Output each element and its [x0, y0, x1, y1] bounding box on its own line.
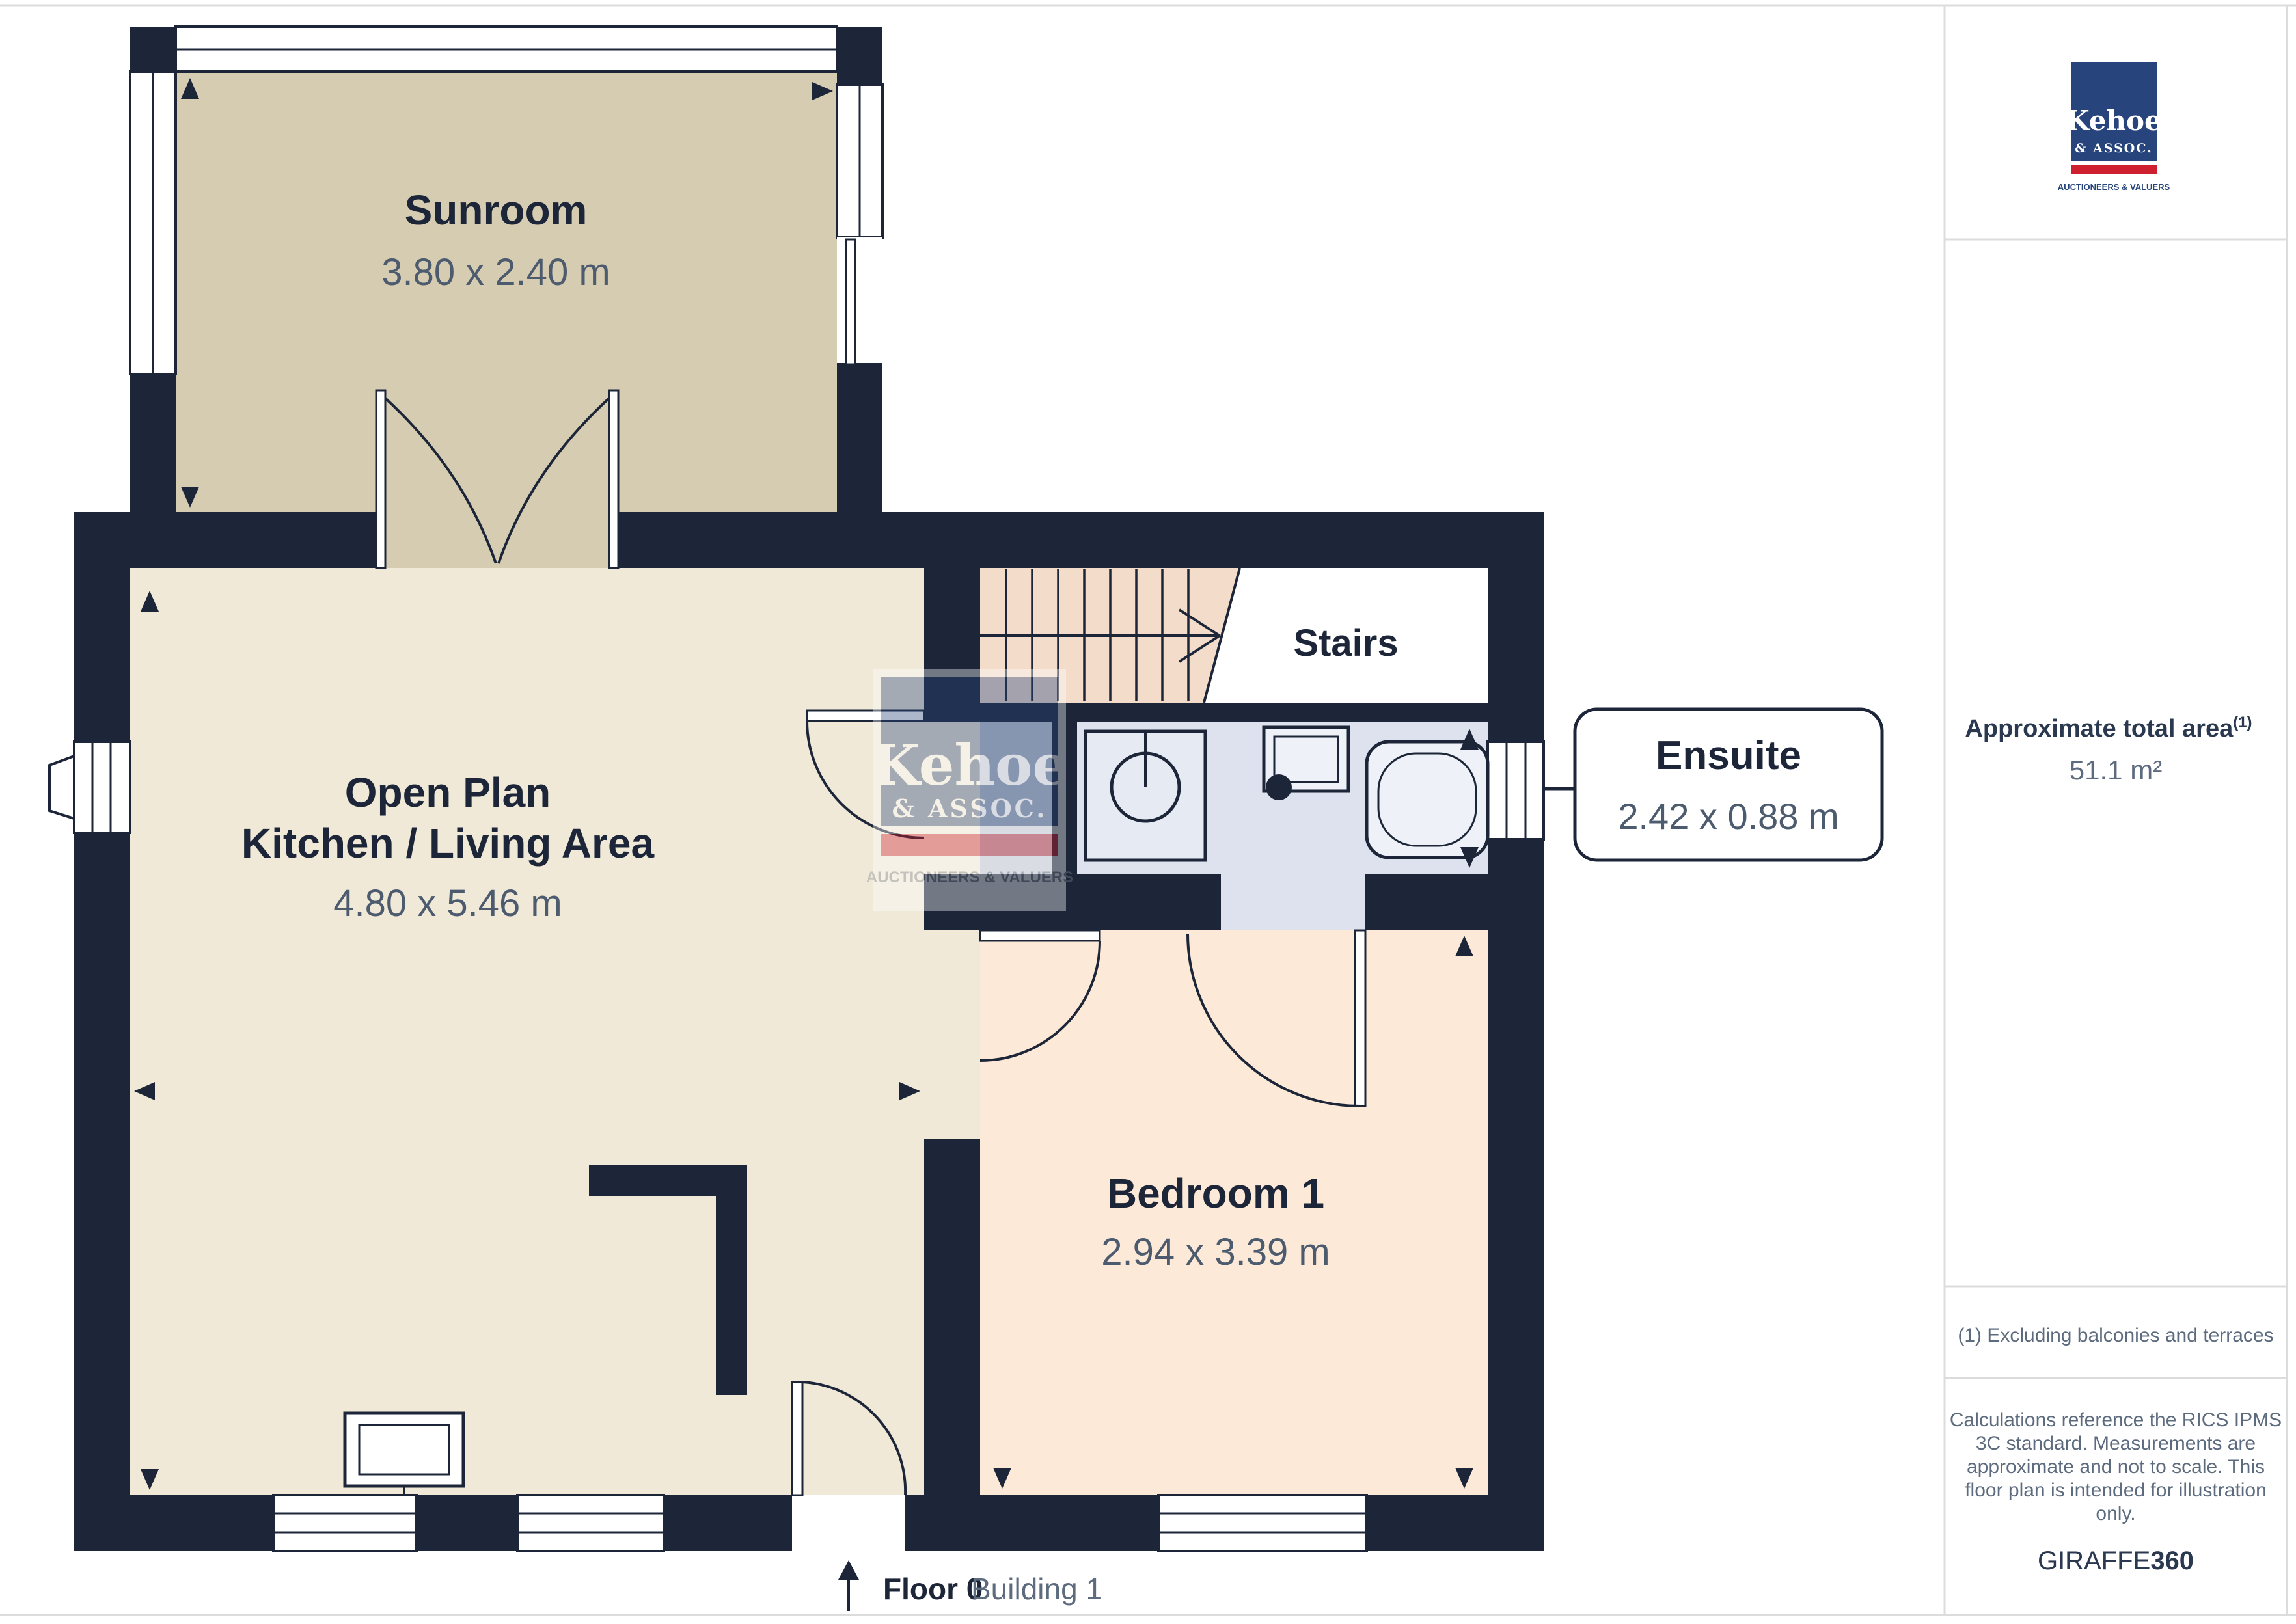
- area-label: Approximate total area(1): [1965, 714, 2252, 742]
- bathtub: [1367, 742, 1488, 858]
- kitchen-floor: [130, 568, 980, 1495]
- watermark-logo-assoc: & ASSOC.: [892, 794, 1048, 823]
- ensuite-dims: 2.42 x 0.88 m: [1618, 796, 1838, 837]
- wall-main-left: [74, 512, 130, 1551]
- building-label: Building 1: [971, 1572, 1102, 1606]
- bedroom-bottom-window: [1158, 1495, 1367, 1551]
- sunroom-right-window: [837, 85, 882, 364]
- wall-partition-vertical: [716, 1196, 747, 1395]
- bedroom-dims: 2.94 x 3.39 m: [1101, 1231, 1330, 1273]
- area-label-text: Approximate total area: [1965, 715, 2234, 742]
- stairs-label: Stairs: [1293, 622, 1398, 664]
- sunroom-floor: [130, 27, 882, 568]
- wall-bedroom-left: [924, 1139, 980, 1495]
- watermark-tagline: AUCTIONEERS & VALUERS: [866, 869, 1073, 886]
- ensuite-right-window: [1488, 742, 1544, 839]
- disclaimer-line-1: Calculations reference the RICS IPMS: [1950, 1409, 2282, 1431]
- wall-main-right: [1488, 512, 1544, 1551]
- agency-logo: Kehoe & ASSOC. AUCTIONEERS & VALUERS: [2058, 62, 2170, 192]
- disclaimer-line-4: floor plan is intended for illustration: [1965, 1480, 2267, 1501]
- ensuite-callout: Ensuite 2.42 x 0.88 m: [1544, 709, 1882, 860]
- kitchen-label-line2: Kitchen / Living Area: [241, 820, 655, 867]
- logo-name: Kehoe: [2066, 105, 2162, 137]
- brand-suffix: 360: [2150, 1547, 2194, 1575]
- area-superscript: (1): [2233, 714, 2252, 731]
- sunroom-label: Sunroom: [405, 187, 588, 234]
- footnote: (1) Excluding balconies and terraces: [1958, 1325, 2273, 1346]
- sunroom-dims: 3.80 x 2.40 m: [381, 251, 610, 293]
- footer-caption: Floor 0 Building 1: [883, 1572, 1102, 1606]
- entrance-door-opening: [792, 1495, 905, 1551]
- callout-box: [1575, 709, 1882, 860]
- ensuite-door-opening: [1221, 874, 1365, 930]
- kitchen-label-line1: Open Plan: [345, 769, 551, 816]
- floor-label: Floor 0: [883, 1572, 983, 1606]
- kitchen-dims: 4.80 x 5.46 m: [333, 882, 562, 925]
- disclaimer-line-2: 3C standard. Measurements are: [1976, 1433, 2256, 1454]
- brand: GIRAFFE360: [2038, 1547, 2194, 1575]
- stove-unit: [345, 1413, 463, 1495]
- kitchen-left-window: [49, 742, 130, 833]
- sidebar: Kehoe & ASSOC. AUCTIONEERS & VALUERS App…: [1945, 5, 2287, 1615]
- wall-sunroom-corner-tl: [130, 27, 176, 72]
- entrance-arrow-head: [838, 1560, 859, 1580]
- wall-main-top: [74, 512, 1544, 568]
- brand-name: GIRAFFE: [2038, 1547, 2150, 1575]
- total-area-block: Approximate total area(1) 51.1 m²: [1965, 714, 2252, 785]
- sunroom-door-opening: [376, 512, 618, 568]
- sunroom-top-window: [176, 27, 837, 72]
- disclaimer-line-3: approximate and not to scale. This: [1967, 1456, 2265, 1478]
- logo-red-stripe: [2071, 165, 2157, 174]
- shower: [1086, 731, 1205, 860]
- sunroom-right-door-gap: [837, 237, 882, 363]
- wall-partition-horizontal: [589, 1165, 747, 1196]
- wall-sunroom-corner-tr: [837, 27, 882, 72]
- logo-tagline: AUCTIONEERS & VALUERS: [2058, 182, 2170, 192]
- watermark-red-stripe: [881, 834, 1058, 856]
- sunroom-left-window: [130, 72, 176, 374]
- sunroom-right-door-leaf: [846, 239, 855, 364]
- disclaimer: Calculations reference the RICS IPMS 3C …: [1950, 1409, 2282, 1524]
- kitchen-bottom-window-1: [273, 1495, 417, 1551]
- kitchen-bottom-window-2: [517, 1495, 664, 1551]
- area-value: 51.1 m²: [2070, 755, 2162, 785]
- wall-sunroom-right-upper: [837, 72, 882, 85]
- wall-sunroom-right-lower: [837, 363, 882, 568]
- logo-assoc: & ASSOC.: [2075, 141, 2153, 156]
- watermark: Kehoe & ASSOC. AUCTIONEERS & VALUERS: [866, 669, 1073, 911]
- plumbing-point: [1266, 774, 1292, 800]
- floorplan-page: Kehoe & ASSOC. AUCTIONEERS & VALUERS Sun…: [0, 0, 2296, 1624]
- ensuite-label: Ensuite: [1656, 733, 1801, 778]
- watermark-logo-name: Kehoe: [871, 733, 1068, 798]
- disclaimer-line-5: only.: [2096, 1503, 2135, 1524]
- bedroom-label: Bedroom 1: [1107, 1170, 1324, 1217]
- wall-sunroom-left-lower: [130, 374, 176, 568]
